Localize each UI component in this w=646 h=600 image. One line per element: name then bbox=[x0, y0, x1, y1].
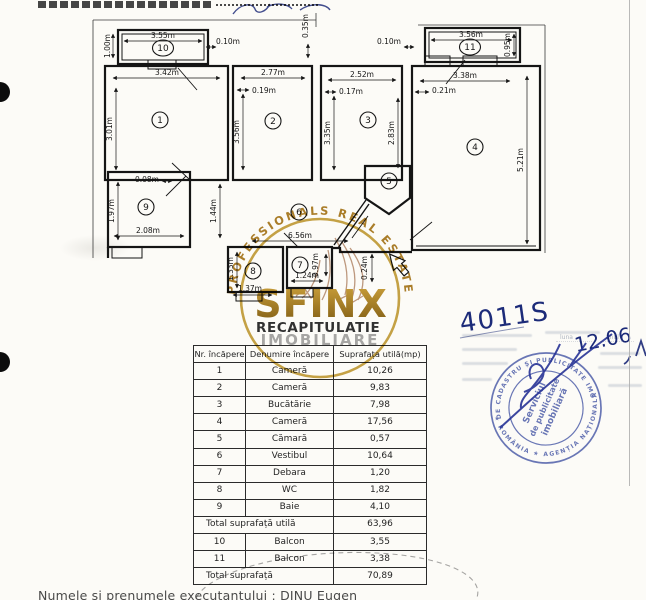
footer-text: Numele si prenumele executantului : DINU… bbox=[38, 588, 518, 600]
inner-diagonal-walls bbox=[334, 200, 369, 248]
table-header-cell: Nr. încăpere bbox=[194, 346, 246, 363]
dimension-label: 0.10m bbox=[216, 37, 240, 46]
bleed-mark bbox=[462, 362, 508, 365]
table-cell: 1,20 bbox=[334, 465, 427, 482]
dimension-label: 5.21m bbox=[516, 148, 525, 172]
stamp-center-line3: imobiliară bbox=[540, 387, 570, 438]
svg-text:10: 10 bbox=[157, 44, 169, 54]
table-cell: 9,83 bbox=[334, 380, 427, 397]
table-row: 3Bucătărie7,98 bbox=[194, 397, 427, 414]
table-cell: 10 bbox=[194, 534, 246, 551]
table-cell: 3,55 bbox=[334, 534, 427, 551]
dimension-label: 0.97m bbox=[311, 253, 320, 277]
table-row: Total suprafață70,89 bbox=[194, 568, 427, 585]
dimension-label: 3.35m bbox=[323, 121, 332, 145]
sphinx-sketch bbox=[296, 238, 363, 302]
svg-text:7: 7 bbox=[297, 261, 303, 271]
faint-word-luna: luna bbox=[560, 334, 573, 341]
table-cell: 4 bbox=[194, 414, 246, 431]
svg-text:1: 1 bbox=[157, 116, 163, 126]
dimension-label: 3.38m bbox=[453, 71, 477, 80]
dimension-label: 0.19m bbox=[252, 86, 276, 95]
room-number: 1 bbox=[152, 112, 168, 128]
room-number: 11 bbox=[460, 39, 481, 55]
dimension-label: 3.55m bbox=[151, 31, 175, 40]
table-cell: 8 bbox=[194, 482, 246, 499]
dimension-label: 0.35m bbox=[301, 14, 310, 38]
table-cell: 1 bbox=[194, 363, 246, 380]
dimension-label: 2.08m bbox=[136, 226, 160, 235]
table-cell: 10,64 bbox=[334, 448, 427, 465]
dimension-label: 1.37m bbox=[238, 284, 262, 293]
table-cell: 70,89 bbox=[334, 568, 427, 585]
punch-hole bbox=[0, 352, 10, 372]
table-row: 2Cameră9,83 bbox=[194, 380, 427, 397]
bleed-mark bbox=[462, 378, 492, 381]
dimension-label: 3.01m bbox=[105, 117, 114, 141]
table-cell: 7 bbox=[194, 465, 246, 482]
table-cell: Balcon bbox=[246, 534, 334, 551]
dimension-label: 2.52m bbox=[350, 70, 374, 79]
table-cell: Balcon bbox=[246, 551, 334, 568]
table-cell: 4,10 bbox=[334, 499, 427, 516]
dimension-label: 1.24m bbox=[295, 271, 319, 280]
dimension-label: 0.08m bbox=[135, 175, 159, 184]
svg-text:2: 2 bbox=[270, 117, 276, 127]
dimension-label: 2.83m bbox=[387, 121, 396, 145]
table-row: 10Balcon3,55 bbox=[194, 534, 427, 551]
table-cell: 63,96 bbox=[334, 516, 427, 533]
faint-word-anul: anul bbox=[606, 334, 619, 341]
dimension-label: 0.24m bbox=[360, 256, 369, 280]
table-cell: 7,98 bbox=[334, 397, 427, 414]
svg-text:4: 4 bbox=[472, 143, 478, 153]
bleed-mark bbox=[462, 334, 532, 337]
bleed-mark bbox=[600, 352, 640, 355]
table-cell: Bucătărie bbox=[246, 397, 334, 414]
dimension-label: 3.56m bbox=[459, 30, 483, 39]
svg-text:9: 9 bbox=[143, 203, 149, 213]
dimension-label: 1.97m bbox=[107, 199, 116, 223]
room-number: 7 bbox=[292, 257, 308, 273]
handwritten-apartment-number: 4011S bbox=[458, 297, 551, 339]
table-cell: 3,38 bbox=[334, 551, 427, 568]
svg-text:11: 11 bbox=[464, 43, 475, 53]
table-cell: 3 bbox=[194, 397, 246, 414]
dimension-label: 0.95m bbox=[503, 33, 512, 57]
table-row: 7Debara1,20 bbox=[194, 465, 427, 482]
wall-details bbox=[112, 32, 536, 301]
stamp-ring-bottom-text: ★ ROMÂNIA ★ AGENȚIA NAȚIONALĂ bbox=[492, 390, 610, 469]
watermark-arc-text: PROFESSIONALS REAL ESTATE bbox=[224, 203, 416, 295]
dimension-lines bbox=[113, 34, 527, 295]
dimension-label: 6.56m bbox=[288, 231, 312, 240]
svg-text:6: 6 bbox=[296, 208, 302, 218]
table-cell: 0,57 bbox=[334, 431, 427, 448]
dimension-label: 0.17m bbox=[339, 87, 363, 96]
table-row: 9Baie4,10 bbox=[194, 499, 427, 516]
room-number: 10 bbox=[153, 40, 174, 56]
stamp-center-line1: Serviciul bbox=[522, 381, 549, 425]
page-fold-line bbox=[629, 0, 630, 486]
dimension-label: 3.42m bbox=[155, 68, 179, 77]
top-dotted-line bbox=[216, 4, 318, 6]
stamp-center-line2: de publicitate bbox=[528, 376, 562, 437]
table-header-cell: Suprafața utilă(mp) bbox=[334, 346, 427, 363]
table-cell: 11 bbox=[194, 551, 246, 568]
punch-hole bbox=[0, 82, 10, 102]
room-number-circles: 1234567891011 bbox=[138, 39, 483, 279]
table-cell: 1,82 bbox=[334, 482, 427, 499]
table-cell: Vestibul bbox=[246, 448, 334, 465]
dimension-label: 0.21m bbox=[432, 86, 456, 95]
table-row: 1Cameră10,26 bbox=[194, 363, 427, 380]
room-number: 6 bbox=[291, 204, 307, 220]
svg-text:5: 5 bbox=[386, 177, 392, 187]
table-cell: 6 bbox=[194, 448, 246, 465]
table-cell: WC bbox=[246, 482, 334, 499]
recap-table: Nr. încăpereDenumire încăpereSuprafața u… bbox=[193, 345, 427, 585]
room-number: 3 bbox=[360, 112, 376, 128]
ruled-line bbox=[556, 341, 592, 342]
dimension-labels: 3.55m1.00m0.10m0.35m3.42m3.01m2.77m0.19m… bbox=[103, 14, 525, 293]
table-row: 11Balcon3,38 bbox=[194, 551, 427, 568]
table-cell: 17,56 bbox=[334, 414, 427, 431]
lot-contour bbox=[93, 13, 545, 258]
table-cell: Cameră bbox=[246, 380, 334, 397]
table-cell: Cameră bbox=[246, 363, 334, 380]
dimension-label: 1.44m bbox=[209, 199, 218, 223]
bleed-mark bbox=[608, 384, 642, 387]
table-cell: Total suprafață utilă bbox=[194, 516, 334, 533]
dimension-label: 3.56m bbox=[232, 120, 241, 144]
table-cell: Baie bbox=[246, 499, 334, 516]
table-row: Total suprafață utilă63,96 bbox=[194, 516, 427, 533]
door-swings bbox=[166, 60, 465, 247]
room-number: 2 bbox=[265, 113, 281, 129]
table-row: 5Cămară0,57 bbox=[194, 431, 427, 448]
room-number: 9 bbox=[138, 199, 154, 215]
table-row: 6Vestibul10,64 bbox=[194, 448, 427, 465]
table-cell: Debara bbox=[246, 465, 334, 482]
svg-text:3: 3 bbox=[365, 116, 371, 126]
paper-smudge bbox=[60, 235, 130, 261]
scanned-floorplan-document: 3.55m1.00m0.10m0.35m3.42m3.01m2.77m0.19m… bbox=[0, 0, 646, 600]
north-arrow-icon bbox=[384, 249, 412, 279]
dimension-label: 0.10m bbox=[377, 37, 401, 46]
table-cell: 10,26 bbox=[334, 363, 427, 380]
table-cell: Total suprafață bbox=[194, 568, 334, 585]
table-cell: 5 bbox=[194, 431, 246, 448]
recap-title: RECAPITULATIE bbox=[256, 320, 380, 336]
table-cell: 2 bbox=[194, 380, 246, 397]
bleed-mark bbox=[462, 348, 517, 351]
table-cell: 9 bbox=[194, 499, 246, 516]
svg-text:8: 8 bbox=[250, 267, 256, 277]
dimension-label: 1.33m bbox=[226, 257, 235, 281]
walls bbox=[105, 28, 540, 292]
room-number: 8 bbox=[245, 263, 261, 279]
dimension-label: 2.77m bbox=[261, 68, 285, 77]
table-header-cell: Denumire încăpere bbox=[246, 346, 334, 363]
top-clipped-text bbox=[38, 1, 214, 8]
room-number: 5 bbox=[381, 173, 397, 189]
table-row: 4Cameră17,56 bbox=[194, 414, 427, 431]
table-cell: Cameră bbox=[246, 414, 334, 431]
table-header-row: Nr. încăpereDenumire încăpereSuprafața u… bbox=[194, 346, 427, 363]
bleed-mark bbox=[598, 366, 642, 369]
room-number: 4 bbox=[467, 139, 483, 155]
table-row: 8WC1,82 bbox=[194, 482, 427, 499]
dimension-label: 1.00m bbox=[103, 34, 112, 58]
table-cell: Cămară bbox=[246, 431, 334, 448]
